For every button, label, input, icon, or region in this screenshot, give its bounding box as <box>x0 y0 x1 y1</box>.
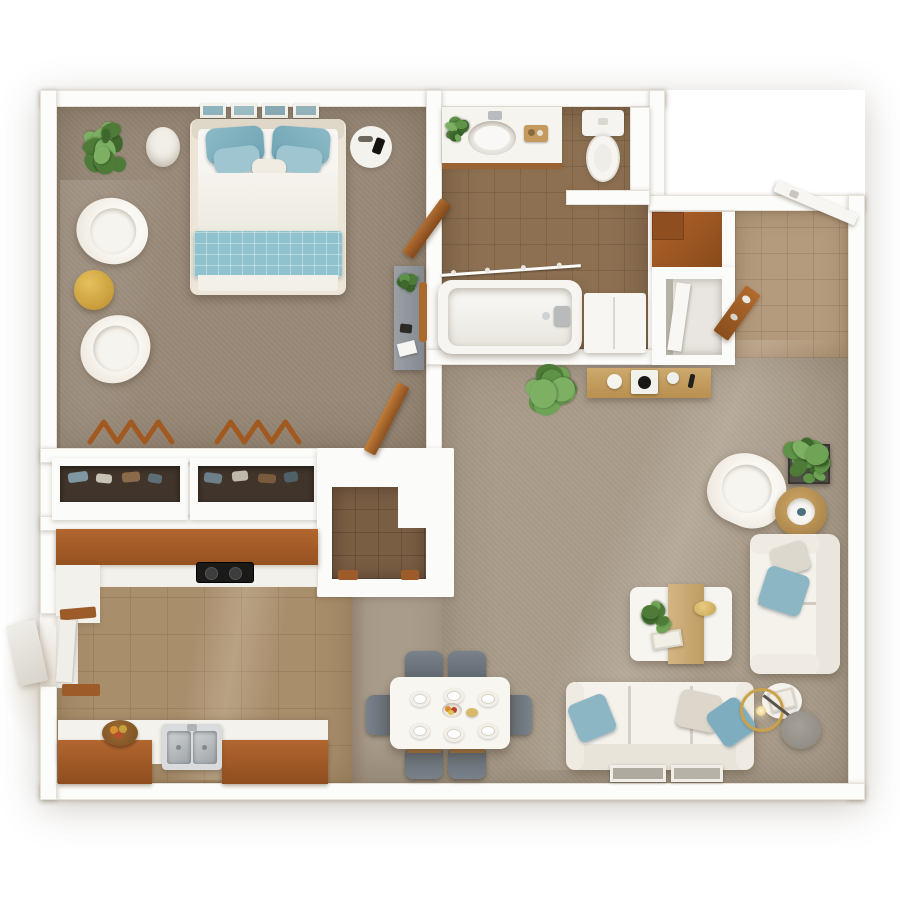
zigzag-rack <box>213 416 303 448</box>
fruit-bowl <box>102 720 138 746</box>
loveseat-back <box>816 534 840 674</box>
table-plant <box>638 599 674 635</box>
decor-bowl-center <box>797 508 806 516</box>
chair-wood-trim <box>407 749 441 753</box>
wood-trim <box>338 570 358 580</box>
bedroom-wall-art <box>200 103 320 120</box>
kitchen-counter-bottom <box>58 718 328 784</box>
sink-drain <box>176 745 181 750</box>
stored-item <box>122 471 141 483</box>
picture-frame <box>293 103 319 118</box>
foot-sheet <box>198 275 338 291</box>
burner <box>229 567 242 580</box>
cabinet-wood-left <box>58 740 152 784</box>
leaning-art-frame <box>610 765 666 782</box>
bedroom-plant <box>76 122 128 174</box>
dining-chair <box>448 749 486 779</box>
round-pouf <box>146 127 180 167</box>
sink-drain <box>202 745 207 750</box>
duvet <box>198 173 338 235</box>
bath-cabinet <box>584 293 646 353</box>
wardrobe-closet-right <box>190 458 322 520</box>
desk-gadget <box>400 323 413 333</box>
wall-bedroom-right <box>426 90 442 462</box>
place-plate <box>444 726 464 742</box>
gray-side-table <box>781 711 821 749</box>
round-side-table <box>775 487 827 537</box>
floorplan-scene <box>0 0 900 900</box>
vanity-faucet <box>488 111 502 120</box>
kitchen-side-doorway <box>56 608 102 704</box>
leaning-art-frame <box>671 765 723 782</box>
place-plate <box>478 723 498 739</box>
centerpiece-bowl <box>442 703 462 718</box>
entry-floor <box>735 211 848 358</box>
wall-toilet-column <box>630 107 650 191</box>
record-disc <box>638 376 651 389</box>
phone <box>372 137 386 155</box>
place-plate <box>410 691 430 707</box>
sink-faucet <box>187 724 197 731</box>
hall-closet <box>317 448 454 597</box>
loveseat <box>750 534 840 674</box>
floorplan-3d-render <box>0 0 900 900</box>
tub-faucet <box>554 306 570 326</box>
place-plate <box>478 691 498 707</box>
coffee-table <box>630 587 732 663</box>
vanity-tray <box>524 125 548 142</box>
bed <box>190 119 346 295</box>
desk-plant <box>396 268 420 292</box>
wall-topright-vertical <box>649 90 665 211</box>
stored-item <box>258 473 277 483</box>
bathtub <box>438 280 582 354</box>
doorway-wood-trim <box>60 606 97 620</box>
toilet-flush-button <box>598 118 608 125</box>
gold-bowl <box>694 601 716 616</box>
cushion-seam <box>628 686 631 744</box>
loveseat-arm <box>750 654 820 674</box>
wall-toilet-ledge <box>566 190 650 205</box>
wood-trim <box>401 570 419 580</box>
quilted-throw <box>194 231 342 277</box>
toiletry <box>537 130 543 136</box>
desk-bench <box>419 282 427 342</box>
nightstand <box>350 126 392 168</box>
plant-leaf <box>641 605 658 619</box>
console-vase <box>667 372 679 384</box>
gold-dish <box>466 708 478 717</box>
zigzag-rack <box>86 416 176 448</box>
vanity-sink <box>468 121 516 155</box>
fruit <box>114 732 123 739</box>
wall-left-lower <box>40 686 57 800</box>
shelf-item <box>741 294 752 305</box>
console-plant <box>524 362 580 418</box>
console-table <box>587 366 711 399</box>
toilet-bowl <box>586 134 620 182</box>
kitchen-carpet-transition <box>352 597 366 783</box>
vanity-wood-edge <box>442 163 562 169</box>
toilet-seat <box>594 144 612 172</box>
vanity-plant <box>444 115 472 143</box>
cabinet-seam <box>613 297 615 349</box>
doorway-wood-trim <box>62 684 100 696</box>
shelf-item <box>729 312 739 322</box>
sink-bowl <box>474 126 510 150</box>
picture-frame <box>200 103 226 118</box>
record-player <box>631 370 658 394</box>
picture-frame <box>231 103 257 118</box>
cabinet-wood-right <box>222 740 328 784</box>
entry-closet-block <box>652 211 735 365</box>
entry-cabinet-lid <box>652 212 684 240</box>
toilet <box>580 110 626 184</box>
wall-bottom <box>40 783 865 800</box>
cooktop <box>196 562 254 583</box>
sunglasses <box>358 136 373 142</box>
fruit <box>448 710 454 715</box>
wall-right <box>848 195 865 800</box>
sofa <box>566 682 754 770</box>
toiletry <box>528 129 535 136</box>
picture-frame <box>262 103 288 118</box>
dining-chair <box>405 749 443 779</box>
counter-wood <box>56 529 318 566</box>
gold-side-table <box>74 270 114 310</box>
bathroom-vanity <box>442 107 562 170</box>
console-vase <box>607 374 622 389</box>
entry-cabinet-side-wall <box>722 212 735 268</box>
chair-wood-trim <box>450 749 484 753</box>
bedroom-desk <box>394 266 428 370</box>
place-plate <box>410 723 430 739</box>
hall-closet-notch <box>398 487 426 528</box>
stored-item <box>96 473 113 484</box>
stored-item <box>232 470 249 482</box>
kitchen-sink <box>162 724 222 770</box>
tub-drain <box>542 312 550 320</box>
wall-top <box>40 90 666 107</box>
arc-floor-lamp <box>740 688 786 734</box>
stored-item <box>203 472 222 484</box>
wall-left-upper <box>40 90 57 614</box>
wardrobe-closet-left <box>52 458 188 520</box>
dining-set <box>366 651 532 781</box>
lamp-bulb <box>756 706 766 716</box>
burner <box>205 567 218 580</box>
place-plate <box>444 688 464 704</box>
